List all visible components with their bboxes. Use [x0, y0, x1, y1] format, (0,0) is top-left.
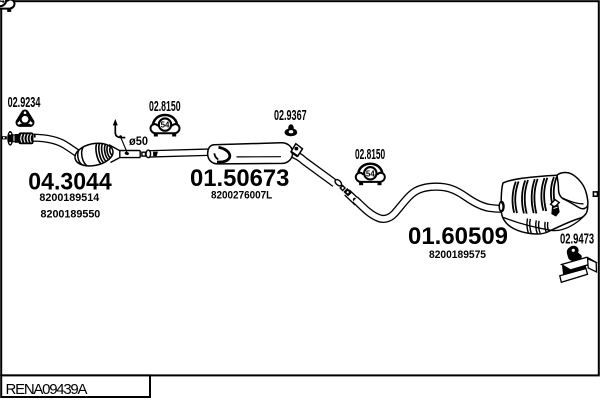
svg-text:8200189550: 8200189550	[41, 208, 101, 220]
svg-text:54: 54	[0, 0, 5, 5]
svg-text:02.8150: 02.8150	[355, 146, 385, 163]
svg-text:8200276007L: 8200276007L	[211, 190, 273, 202]
svg-text:02.9234: 02.9234	[8, 94, 41, 111]
svg-text:ø50: ø50	[129, 134, 148, 148]
svg-text:02.9367: 02.9367	[274, 107, 307, 124]
svg-text:8200189575: 8200189575	[429, 249, 486, 261]
svg-text:02.8150: 02.8150	[149, 98, 181, 115]
svg-text:01.60509: 01.60509	[408, 223, 508, 250]
svg-text:8200189514: 8200189514	[39, 192, 99, 204]
svg-text:RENA09439A: RENA09439A	[6, 381, 88, 398]
svg-text:02.9473: 02.9473	[560, 230, 594, 247]
svg-text:01.50673: 01.50673	[190, 165, 289, 192]
